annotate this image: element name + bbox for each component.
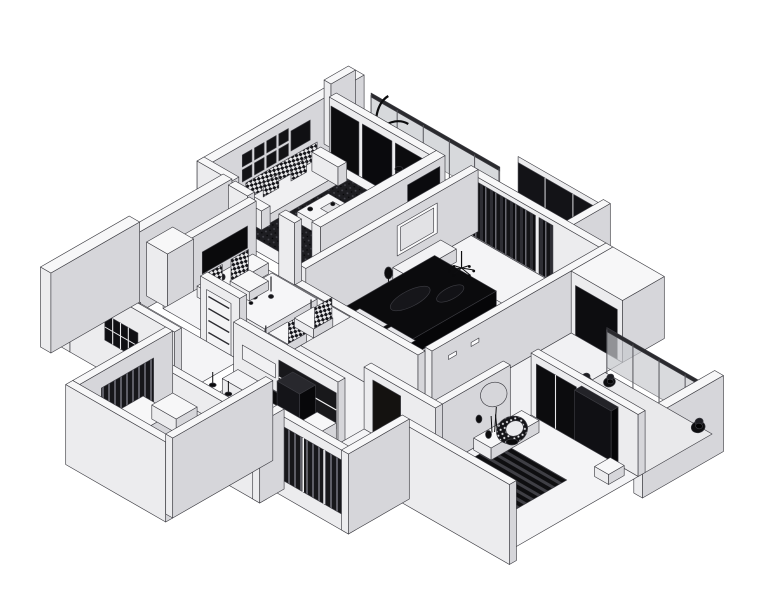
dining-part xyxy=(268,295,273,299)
bl-balcony-se-wall xyxy=(166,434,173,518)
chandelier-bulb xyxy=(448,270,451,273)
bedroom2-part xyxy=(506,439,518,445)
chandelier-bulb xyxy=(472,270,475,273)
floorplan-render xyxy=(0,0,768,614)
master-curtains xyxy=(539,218,553,282)
living-room-part xyxy=(308,207,313,211)
floorplan-image xyxy=(0,0,768,614)
connector-wall xyxy=(342,450,349,534)
partition-stub xyxy=(279,214,295,285)
bedroom2-part xyxy=(476,415,482,423)
bedroom2-ne-wall xyxy=(638,411,645,477)
kitchen-ne-wall xyxy=(338,378,345,444)
bedroom2-part xyxy=(486,431,492,439)
chandelier-bulb xyxy=(468,265,471,268)
chandelier-bulb xyxy=(468,274,471,277)
dining-part xyxy=(249,301,253,304)
partition-stub xyxy=(295,219,302,285)
chandelier-bulb xyxy=(452,274,455,277)
chandelier-bulb xyxy=(452,265,455,268)
outer-wall-west xyxy=(41,267,51,353)
living-room-part xyxy=(331,202,335,206)
bedroom2-sw-wall xyxy=(509,481,516,565)
